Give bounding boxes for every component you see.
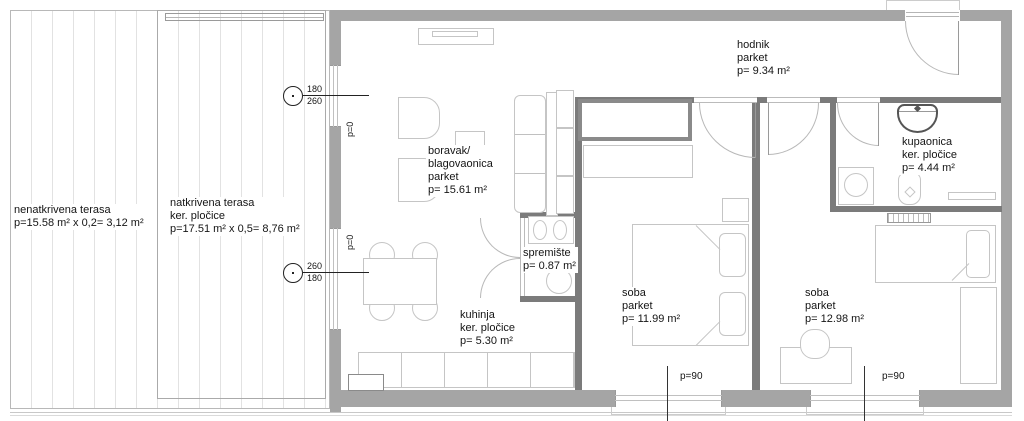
window-sill-2 — [806, 407, 924, 415]
armchair-icon — [398, 97, 440, 139]
window-marker-circle — [283, 263, 303, 283]
kitchen-tall-unit-icon — [556, 128, 574, 176]
tv-icon — [432, 31, 478, 37]
pillow-icon — [966, 230, 990, 278]
parapet-label: p=90 — [680, 371, 703, 382]
storage-door-arc-bottom — [480, 258, 520, 298]
room-label-line: ker. pločice — [902, 149, 957, 162]
room-label-line: hodnik — [737, 39, 790, 52]
room-label-line: p= 5.30 m² — [460, 335, 515, 348]
room-label-boravak: boravak/ blagovaonica parket p= 15.61 m² — [426, 145, 495, 197]
pillow-icon — [719, 292, 746, 336]
pergola-beam — [165, 13, 324, 21]
bathroom-door-arc — [837, 103, 879, 146]
nightstand-icon — [722, 198, 749, 222]
room-label-line: p= 4.44 m² — [902, 162, 957, 175]
wardrobe-shelf — [583, 145, 693, 178]
entrance-glazing-line — [906, 16, 959, 17]
room-label-line: ker. pločice — [460, 322, 515, 335]
interior-wall-hall-3 — [880, 97, 1001, 103]
room-label-line: p= 9.34 m² — [737, 65, 790, 78]
window-marker-height: 180 — [306, 273, 323, 283]
sofa-icon — [514, 95, 546, 213]
room-label-line: p=15.58 m² x 0,2= 3,12 m² — [14, 217, 144, 230]
room-label-line: kuhinja — [460, 309, 515, 322]
parapet-label: p=90 — [882, 371, 905, 382]
storage-wall-bottom — [520, 296, 578, 302]
storage-door-arc-top — [480, 218, 520, 258]
kitchen-sink-icon — [348, 374, 384, 391]
room-label-line: p= 12.98 m² — [805, 313, 864, 326]
window-marker-width: 180 — [306, 84, 323, 94]
dining-table-icon — [363, 258, 437, 305]
room-label-natkrivena-terasa: natkrivena terasa ker. pločice p=17.51 m… — [168, 197, 302, 236]
bedroom-1-door-arc — [699, 103, 756, 158]
room-label-line: parket — [428, 171, 493, 184]
window-glazing-line — [810, 395, 920, 396]
bathroom-wall-left — [830, 97, 836, 212]
appliance-drum-icon — [533, 220, 547, 240]
window-glazing-line — [615, 395, 722, 396]
sofa-cushion-line — [515, 134, 545, 135]
room-label-line: parket — [622, 300, 680, 313]
window-glazing-line — [810, 400, 920, 401]
window-glazing-line — [337, 228, 338, 330]
window-width-tick — [864, 366, 865, 421]
bathroom-shelf-icon — [948, 192, 996, 200]
appliance-drum-icon — [553, 220, 567, 240]
window-glazing-line — [337, 65, 338, 127]
room-label-line: kupaonica — [902, 136, 957, 149]
window-sill-1 — [611, 407, 726, 415]
entrance-glazing-line — [906, 12, 959, 13]
bedroom-2-door-leaf — [768, 103, 769, 155]
parapet-label: p=0 — [346, 122, 355, 137]
room-label-kupaonica: kupaonica ker. pločice p= 4.44 m² — [900, 136, 959, 175]
room-label-line: soba — [622, 287, 680, 300]
sofa-cushion-line — [515, 173, 545, 174]
parapet-label: p=0 — [346, 235, 355, 250]
radiator-icon — [887, 213, 931, 223]
entrance-step — [886, 0, 960, 10]
room-label-kuhinja: kuhinja ker. pločice p= 5.30 m² — [458, 309, 517, 348]
kitchen-tall-unit-icon — [556, 176, 574, 214]
room-label-line: p= 0.87 m² — [523, 260, 576, 273]
room-label-line: p=17.51 m² x 0,5= 8,76 m² — [170, 223, 300, 236]
room-label-line: p= 11.99 m² — [622, 313, 680, 326]
washer-drum-icon — [844, 173, 868, 197]
room-label-line: nenatkrivena terasa — [14, 204, 144, 217]
room-label-line: soba — [805, 287, 864, 300]
window-marker-width: 260 — [306, 261, 323, 271]
room-label-hodnik: hodnik parket p= 9.34 m² — [735, 39, 792, 78]
room-label-line: p= 15.61 m² — [428, 184, 493, 197]
room-label-nenatkrivena-terasa: nenatkrivena terasa p=15.58 m² x 0,2= 3,… — [12, 204, 146, 230]
room-label-line: boravak/ — [428, 145, 493, 158]
interior-wall-hall-post — [757, 97, 767, 103]
room-label-line: ker. pločice — [170, 210, 300, 223]
kitchen-counter-icon — [358, 352, 575, 388]
kitchen-tall-unit-icon — [556, 90, 574, 128]
window-glazing-line — [333, 65, 334, 127]
bathroom-wall-bottom — [830, 206, 1002, 212]
window-glazing-line — [615, 400, 722, 401]
window-width-tick — [667, 366, 668, 421]
window-left-upper — [330, 65, 341, 127]
room-label-line: parket — [805, 300, 864, 313]
floor-plan-canvas: 180 260 260 180 p=0 p=0 p=90 p=90 nenatk… — [0, 0, 1024, 421]
room-label-line: blagovaonica — [428, 158, 493, 171]
pillow-icon — [719, 233, 746, 277]
window-glazing-line — [333, 228, 334, 330]
room-label-soba-1: soba parket p= 11.99 m² — [620, 287, 682, 326]
window-marker-circle — [283, 86, 303, 106]
window-left-lower — [330, 228, 341, 330]
desk-chair-icon — [800, 329, 830, 359]
window-marker-height: 260 — [306, 96, 323, 106]
bedroom-1-door-leaf — [755, 103, 756, 158]
room-label-spremiste: spremište p= 0.87 m² — [521, 247, 578, 273]
bedroom-2-door-arc — [768, 103, 819, 155]
wardrobe-icon — [960, 287, 997, 384]
room-label-line: natkrivena terasa — [170, 197, 300, 210]
window-bottom-2 — [810, 390, 920, 407]
entrance-door-arc — [905, 21, 959, 75]
room-label-line: parket — [737, 52, 790, 65]
outer-wall-right — [1001, 10, 1012, 407]
room-label-line: spremište — [523, 247, 576, 260]
entrance-door-leaf — [958, 21, 959, 75]
wardrobe-niche — [578, 99, 692, 141]
window-bottom-1 — [615, 390, 722, 407]
room-label-soba-2: soba parket p= 12.98 m² — [803, 287, 866, 326]
bathroom-door-leaf — [878, 103, 879, 146]
